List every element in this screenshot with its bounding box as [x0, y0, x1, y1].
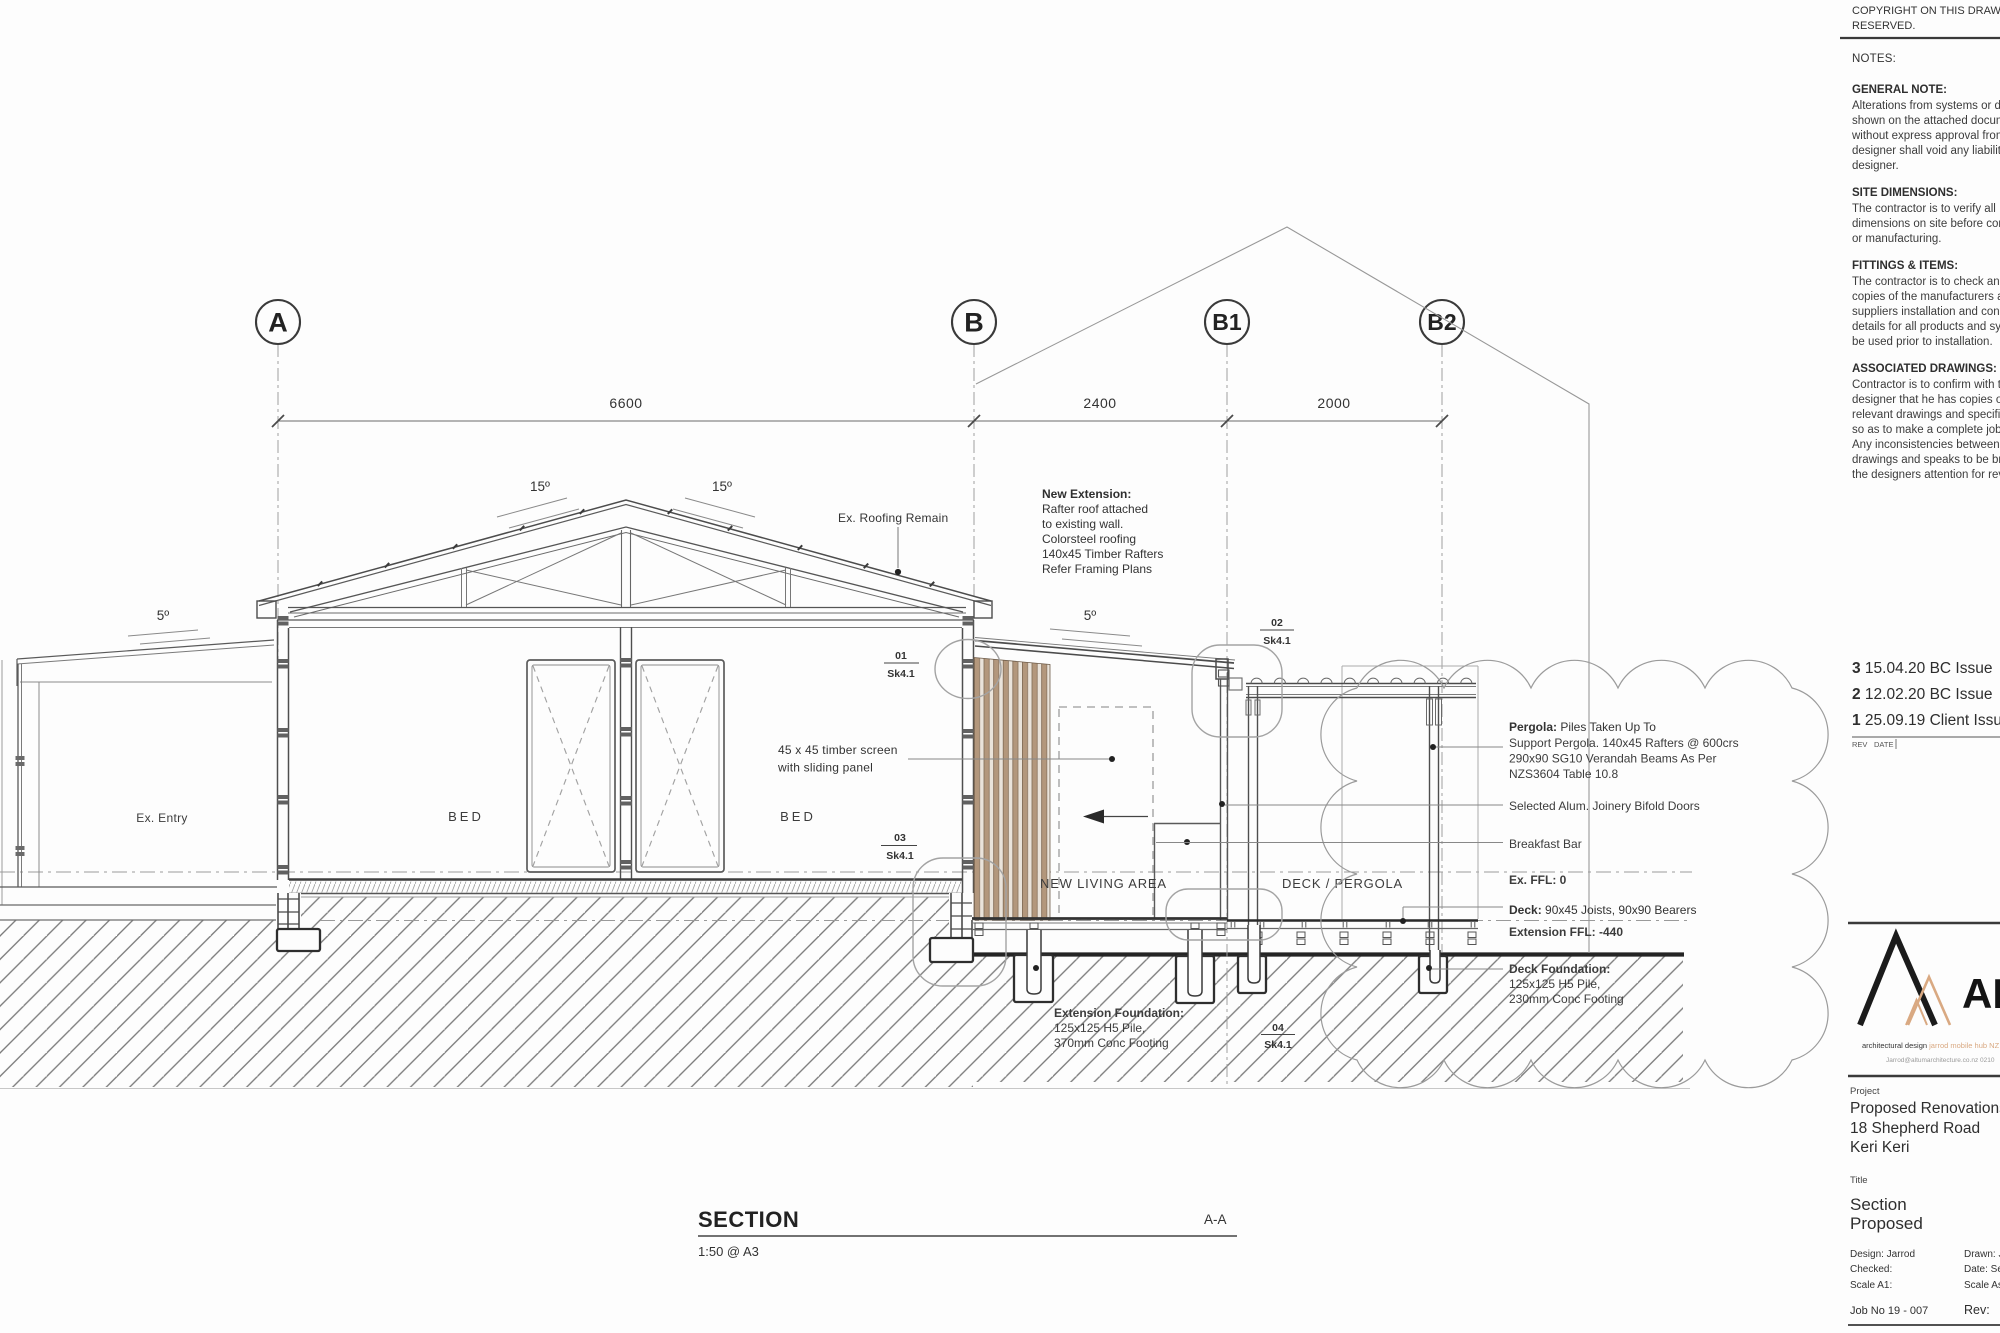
svg-text:Rafter roof attached: Rafter roof attached [1042, 502, 1148, 516]
svg-text:SITE DIMENSIONS:: SITE DIMENSIONS: [1852, 187, 1957, 199]
svg-text:Ex. FFL: 0: Ex. FFL: 0 [1509, 873, 1567, 887]
svg-text:6600: 6600 [609, 395, 642, 411]
svg-text:5º: 5º [157, 608, 170, 623]
svg-text:NZS3604 Table 10.8: NZS3604 Table 10.8 [1509, 767, 1619, 781]
svg-text:Drawn: Jarrod: Drawn: Jarrod [1964, 1249, 2000, 1260]
svg-text:Extension FFL: -440: Extension FFL: -440 [1509, 925, 1623, 939]
svg-text:Jarrod@altumarchitecture.co.nz: Jarrod@altumarchitecture.co.nz 0210 [1886, 1057, 1995, 1064]
svg-text:3 15.04.20 BC Issue: 3 15.04.20 BC Issue [1852, 660, 1992, 677]
svg-text:140x45 Timber Rafters: 140x45 Timber Rafters [1042, 547, 1163, 561]
svg-text:15º: 15º [712, 479, 732, 494]
svg-text:BED: BED [780, 809, 816, 824]
svg-text:2 12.02.20 BC Issue: 2 12.02.20 BC Issue [1852, 686, 1992, 703]
svg-text:shown on the attached document: shown on the attached documents [1852, 115, 2000, 127]
svg-text:Date: Sept 19: Date: Sept 19 [1964, 1264, 2000, 1275]
svg-text:Colorsteel roofing: Colorsteel roofing [1042, 532, 1136, 546]
svg-text:B: B [964, 307, 984, 337]
svg-text:A-A: A-A [1204, 1212, 1227, 1227]
svg-text:FITTINGS & ITEMS:: FITTINGS & ITEMS: [1852, 260, 1958, 272]
svg-text:Sk4.1: Sk4.1 [1264, 1039, 1292, 1051]
svg-text:NOTES:: NOTES: [1852, 53, 1896, 65]
svg-text:2000: 2000 [1317, 395, 1350, 411]
svg-text:Checked:: Checked: [1850, 1264, 1892, 1275]
svg-text:copies of the manufacturers an: copies of the manufacturers and [1852, 291, 2000, 303]
svg-text:Sk4.1: Sk4.1 [887, 668, 915, 680]
svg-text:Proposed: Proposed [1850, 1214, 1923, 1233]
svg-text:Ex. Roofing Remain: Ex. Roofing Remain [838, 511, 948, 525]
svg-text:Any inconsistencies between th: Any inconsistencies between the [1852, 439, 2000, 451]
svg-text:Rev:: Rev: [1964, 1303, 1990, 1317]
svg-text:REV: REV [1852, 740, 1867, 749]
svg-text:ALTUM: ALTUM [1962, 970, 2000, 1017]
svg-text:230mm Conc Footing: 230mm Conc Footing [1509, 992, 1624, 1006]
svg-text:Deck Foundation:: Deck Foundation: [1509, 962, 1610, 976]
svg-text:18 Shepherd Road: 18 Shepherd Road [1850, 1120, 1980, 1137]
svg-text:A: A [268, 307, 288, 337]
svg-text:Title: Title [1850, 1175, 1868, 1186]
svg-text:Keri Keri: Keri Keri [1850, 1139, 1909, 1156]
svg-text:B1: B1 [1212, 309, 1242, 335]
svg-text:or manufacturing.: or manufacturing. [1852, 233, 1942, 245]
svg-text:02: 02 [1271, 617, 1283, 629]
svg-text:1:50 @ A3: 1:50 @ A3 [698, 1244, 759, 1259]
svg-text:Deck: 90x45 Joists, 90x90 Bear: Deck: 90x45 Joists, 90x90 Bearers [1509, 903, 1696, 917]
svg-text:Extension Foundation:: Extension Foundation: [1054, 1006, 1184, 1020]
svg-text:NEW LIVING AREA: NEW LIVING AREA [1040, 876, 1167, 891]
svg-text:Sk4.1: Sk4.1 [1263, 635, 1291, 647]
svg-text:370mm Conc Footing: 370mm Conc Footing [1054, 1036, 1169, 1050]
svg-text:DATE: DATE [1874, 740, 1893, 749]
svg-text:drawings and speaks to be brou: drawings and speaks to be brought to [1852, 454, 2000, 466]
svg-text:architectural design jarrod mo: architectural design jarrod mobile hub N… [1862, 1041, 2000, 1050]
svg-text:Pergola: Piles Taken Up To: Pergola: Piles Taken Up To [1509, 720, 1656, 734]
svg-text:dimensions on site before cons: dimensions on site before construction [1852, 218, 2000, 230]
svg-text:Section: Section [1850, 1195, 1907, 1214]
svg-text:125x125 H5 Pile,: 125x125 H5 Pile, [1054, 1021, 1145, 1035]
svg-text:designer.: designer. [1852, 160, 1899, 172]
svg-text:BED: BED [448, 809, 484, 824]
svg-text:details for all products and s: details for all products and systems to [1852, 321, 2000, 333]
svg-text:COPYRIGHT ON THIS DRAWING IS: COPYRIGHT ON THIS DRAWING IS [1852, 5, 2000, 17]
svg-text:01: 01 [895, 650, 907, 662]
svg-text:Breakfast Bar: Breakfast Bar [1509, 837, 1582, 851]
svg-text:Selected Alum. Joinery Bifold: Selected Alum. Joinery Bifold Doors [1509, 799, 1700, 813]
svg-text:RESERVED.: RESERVED. [1852, 20, 1915, 32]
svg-text:The contractor is to verify a: The contractor is to verify all [1852, 203, 1996, 215]
svg-text:so as to make a complete job o: so as to make a complete job of all [1852, 424, 2000, 436]
svg-text:Alterations from systems or de: Alterations from systems or details [1852, 100, 2000, 112]
svg-text:Proposed Renovations: Proposed Renovations [1850, 1100, 2000, 1117]
svg-text:Refer Framing Plans: Refer Framing Plans [1042, 562, 1152, 576]
svg-text:1 25.09.19 Client Issue: 1 25.09.19 Client Issue [1852, 712, 2000, 729]
svg-text:15º: 15º [530, 479, 550, 494]
svg-text:290x90 SG10 Verandah Beams As: 290x90 SG10 Verandah Beams As Per [1509, 752, 1716, 766]
svg-text:Project: Project [1850, 1086, 1880, 1097]
svg-text:to existing wall.: to existing wall. [1042, 517, 1123, 531]
svg-text:with sliding panel: with sliding panel [777, 761, 873, 775]
svg-text:2400: 2400 [1083, 395, 1116, 411]
svg-text:04: 04 [1272, 1022, 1284, 1034]
svg-text:DECK / PERGOLA: DECK / PERGOLA [1282, 876, 1403, 891]
svg-text:03: 03 [894, 832, 906, 844]
svg-text:Sk4.1: Sk4.1 [886, 850, 914, 862]
svg-text:suppliers installation and con: suppliers installation and construction [1852, 306, 2000, 318]
svg-text:be used prior to installation.: be used prior to installation. [1852, 336, 1993, 348]
svg-text:the designers attention for re: the designers attention for review. [1852, 469, 2000, 481]
svg-text:ASSOCIATED DRAWINGS:: ASSOCIATED DRAWINGS: [1852, 363, 1997, 375]
svg-text:SECTION: SECTION [698, 1207, 799, 1232]
svg-text:relevant drawings and specific: relevant drawings and specifications [1852, 409, 2000, 421]
svg-text:Scale As Sh: Scale As Sh [1964, 1280, 2000, 1291]
svg-text:45 x 45 timber screen: 45 x 45 timber screen [778, 743, 898, 757]
svg-text:designer shall void any liabil: designer shall void any liability on the [1852, 145, 2000, 157]
svg-text:5º: 5º [1084, 608, 1097, 623]
svg-text:New Extension:: New Extension: [1042, 487, 1131, 501]
svg-text:125x125 H5 Pile,: 125x125 H5 Pile, [1509, 977, 1600, 991]
svg-text:Contractor is to confirm with: Contractor is to confirm with the [1852, 379, 2000, 391]
svg-text:GENERAL NOTE:: GENERAL NOTE: [1852, 84, 1947, 96]
svg-text:Job No 19 - 007: Job No 19 - 007 [1850, 1305, 1928, 1317]
svg-text:Design: Jarrod: Design: Jarrod [1850, 1249, 1915, 1260]
svg-text:designer that he has copies of: designer that he has copies of all the [1852, 394, 2000, 406]
svg-text:The contractor is to check and: The contractor is to check and obtain [1852, 276, 2000, 288]
svg-text:Scale A1:: Scale A1: [1850, 1280, 1892, 1291]
svg-text:B2: B2 [1427, 309, 1456, 335]
svg-text:Support Pergola. 140x45 Rafter: Support Pergola. 140x45 Rafters @ 600crs [1509, 736, 1739, 750]
svg-text:Ex. Entry: Ex. Entry [136, 811, 187, 825]
svg-text:without express approval from: without express approval from the [1851, 130, 2000, 142]
